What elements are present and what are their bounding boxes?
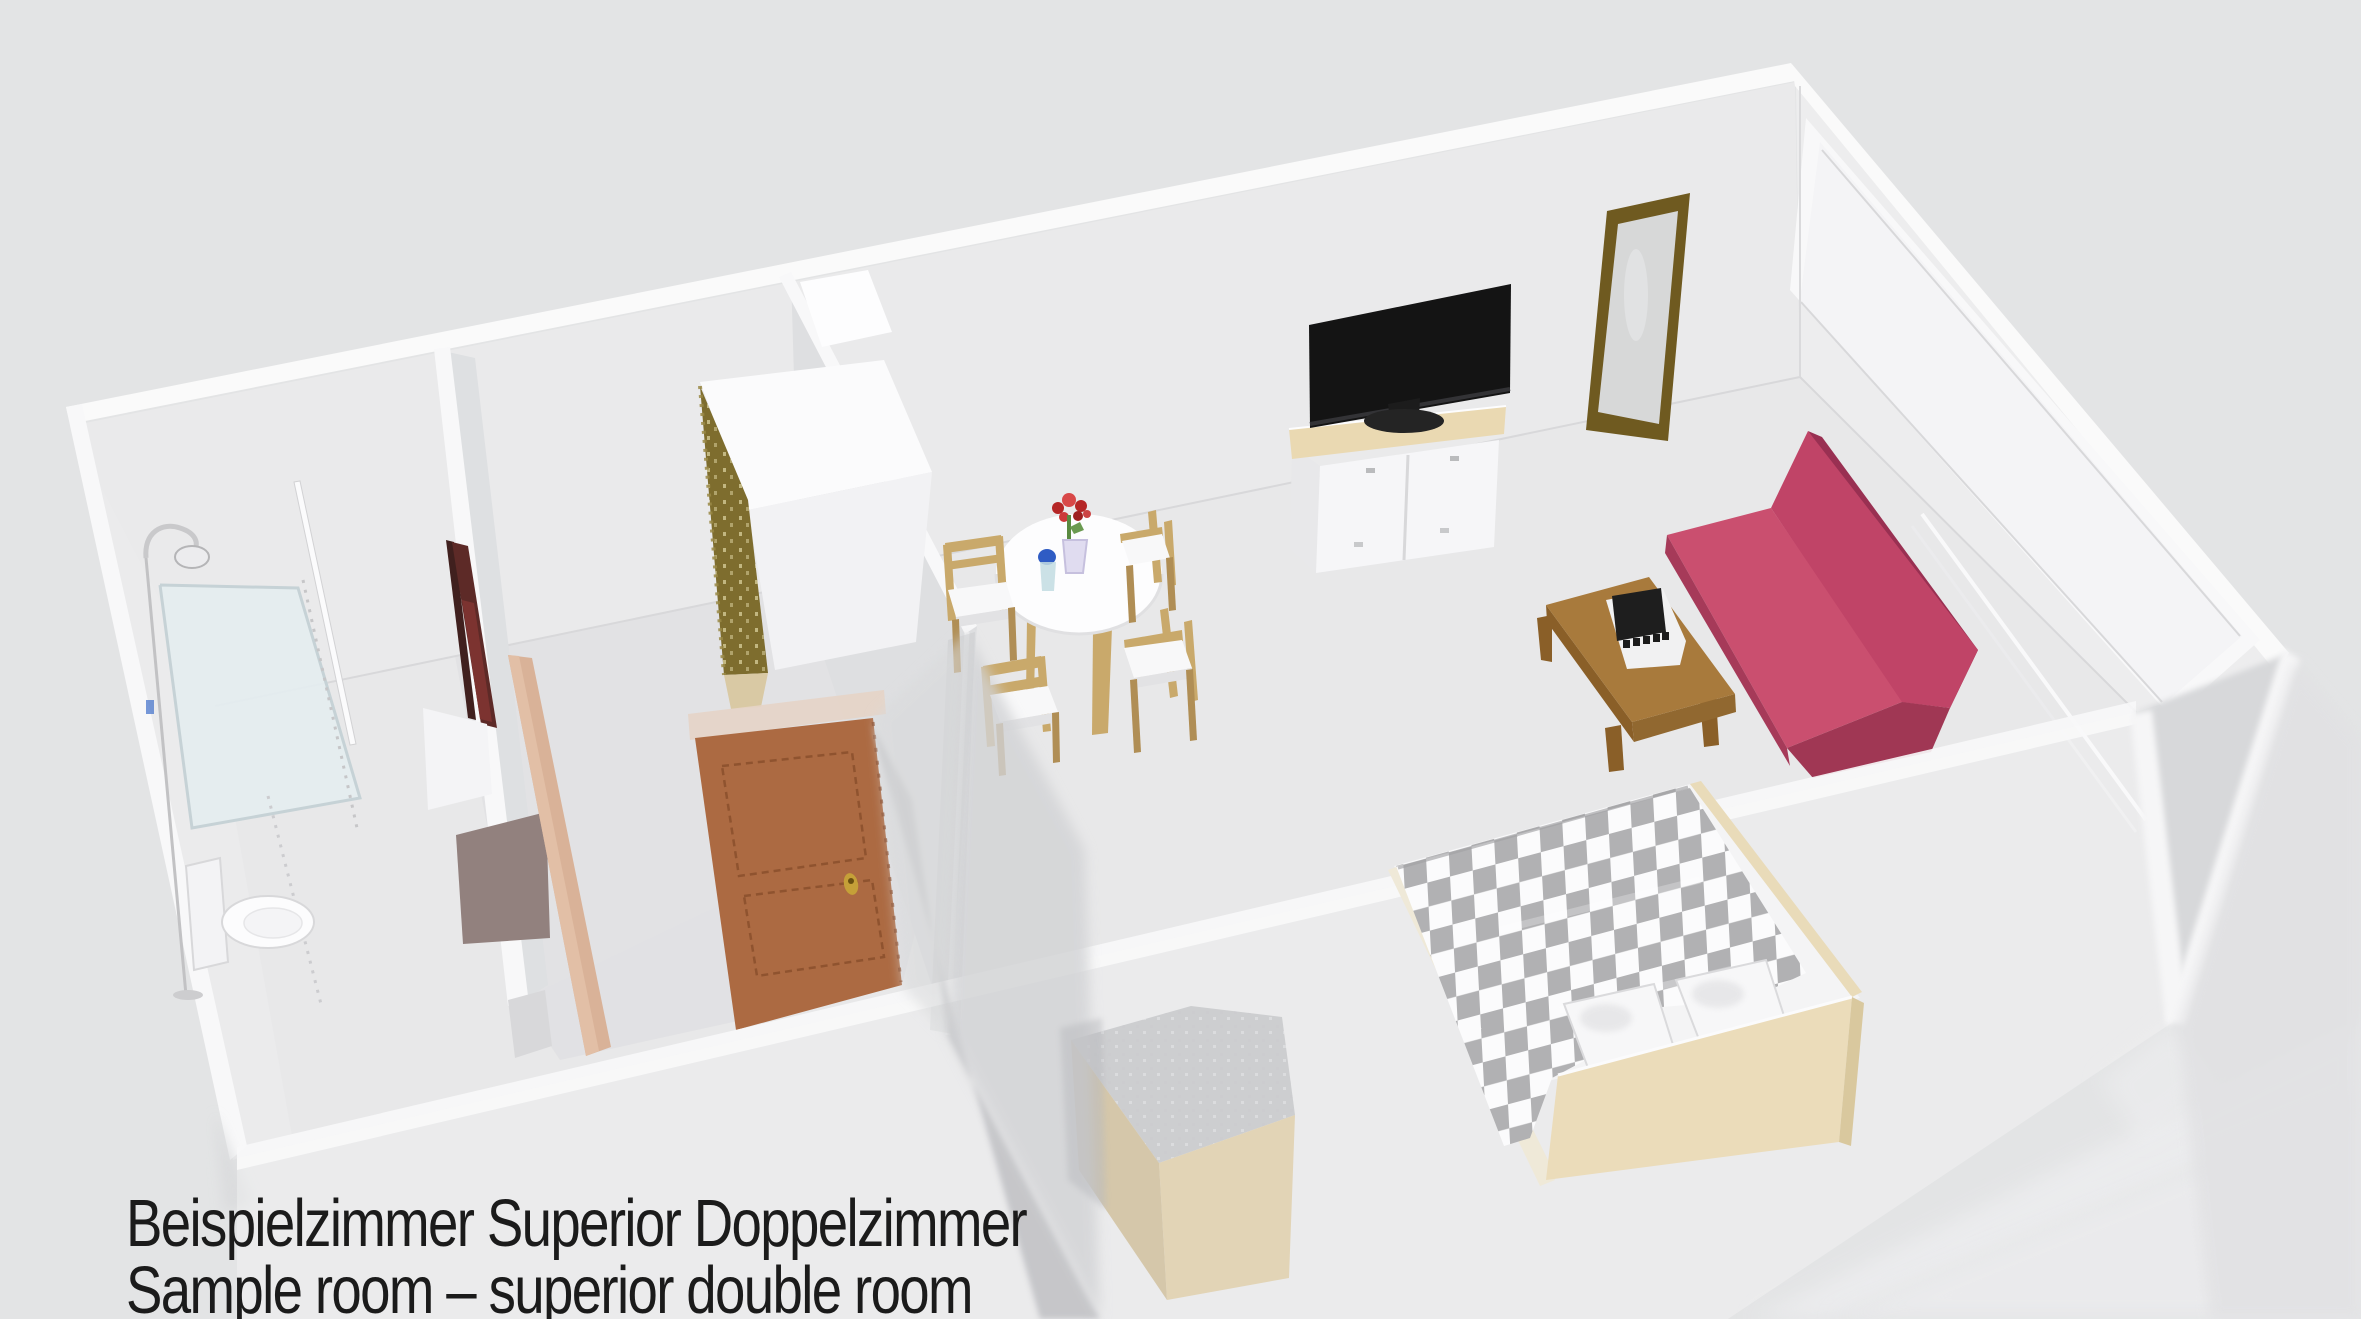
svg-text:Beispielzimmer Superior Doppel: Beispielzimmer Superior Doppelzimmer bbox=[126, 1186, 1027, 1261]
svg-text:Sample room – superior double: Sample room – superior double room bbox=[126, 1253, 972, 1319]
